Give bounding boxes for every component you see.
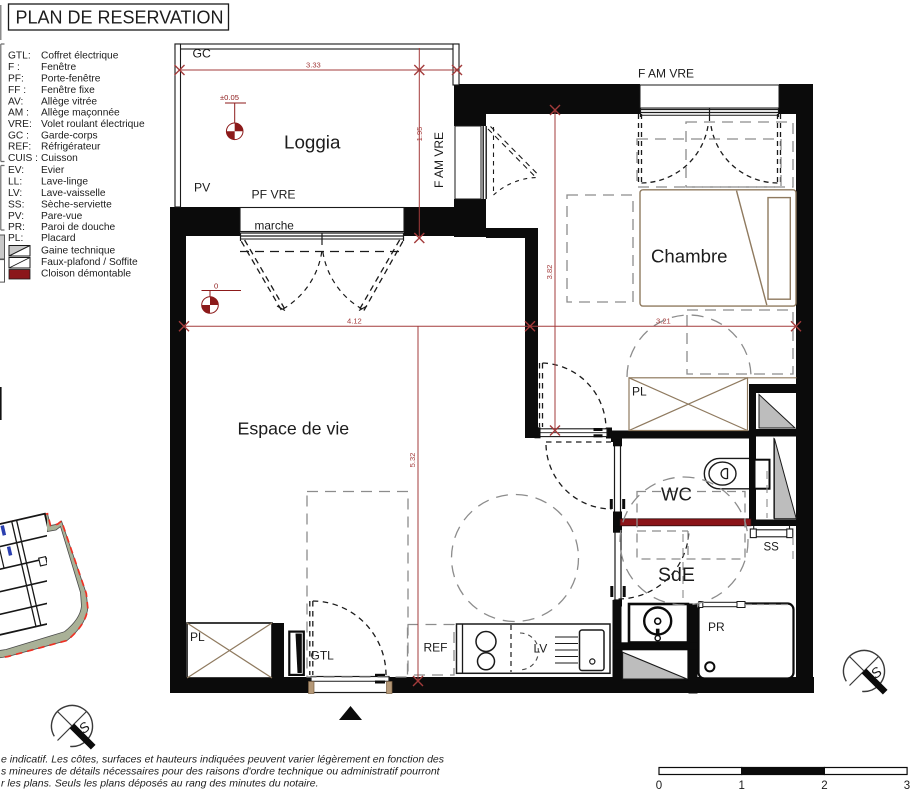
svg-text:GC: GC [193, 47, 211, 61]
svg-text:SdE: SdE [658, 564, 695, 586]
svg-text:EV:: EV: [8, 165, 24, 176]
svg-text:Paroi de douche: Paroi de douche [41, 222, 116, 233]
svg-text:Porte-fenêtre: Porte-fenêtre [41, 74, 101, 85]
svg-text:PV: PV [194, 181, 211, 195]
svg-text:Espace de vie: Espace de vie [238, 419, 350, 439]
svg-text:3.33: 3.33 [306, 61, 321, 70]
svg-text:Cuisson: Cuisson [41, 153, 78, 164]
svg-text:F :: F : [8, 62, 20, 73]
svg-text:REF:: REF: [8, 142, 31, 153]
svg-text:PV:: PV: [8, 211, 24, 222]
svg-text:F AM VRE: F AM VRE [432, 132, 446, 188]
svg-text:Gaine technique: Gaine technique [41, 246, 116, 257]
svg-text:s mineures de détails nécessai: s mineures de détails nécessaires pour d… [1, 766, 441, 778]
svg-text:AM :: AM : [8, 108, 29, 119]
svg-text:Réfrigérateur: Réfrigérateur [41, 142, 101, 153]
svg-text:Volet roulant électrique: Volet roulant électrique [41, 119, 145, 130]
svg-text:PL:: PL: [8, 233, 23, 244]
svg-text:e indicatif. Les côtes, surfac: e indicatif. Les côtes, surfaces et haut… [1, 754, 445, 766]
svg-text:3: 3 [904, 780, 910, 792]
svg-text:5.32: 5.32 [408, 453, 417, 468]
svg-text:Allège maçonnée: Allège maçonnée [41, 108, 120, 119]
svg-text:Lave-linge: Lave-linge [41, 177, 88, 188]
svg-text:0: 0 [656, 780, 662, 792]
svg-text:3.21: 3.21 [656, 317, 671, 326]
svg-text:PR: PR [708, 620, 725, 634]
svg-text:marche: marche [255, 219, 295, 233]
svg-text:Pare-vue: Pare-vue [41, 211, 83, 222]
svg-text:Coffret électrique: Coffret électrique [41, 51, 119, 62]
svg-text:CUIS :: CUIS : [8, 153, 38, 164]
svg-text:PL: PL [190, 630, 205, 644]
svg-text:GTL: GTL [311, 649, 335, 663]
svg-text:3.82: 3.82 [545, 265, 554, 280]
svg-text:REF: REF [424, 641, 448, 655]
svg-text:PLAN DE RESERVATION: PLAN DE RESERVATION [16, 8, 224, 28]
svg-text:Placard: Placard [41, 233, 76, 244]
svg-text:Garde-corps: Garde-corps [41, 130, 98, 141]
svg-text:Sèche-serviette: Sèche-serviette [41, 200, 112, 211]
svg-text:FF :: FF : [8, 85, 26, 96]
svg-text:PF:: PF: [8, 74, 24, 85]
svg-text:Cloison démontable: Cloison démontable [41, 269, 131, 280]
svg-text:2: 2 [821, 780, 827, 792]
svg-text:1: 1 [738, 780, 744, 792]
svg-text:LV: LV [534, 642, 548, 656]
svg-text:LL:: LL: [8, 177, 22, 188]
svg-text:GTL:: GTL: [8, 51, 31, 62]
svg-text:Chambre: Chambre [651, 246, 727, 267]
svg-text:Loggia: Loggia [284, 132, 341, 153]
svg-text:GC :: GC : [8, 130, 29, 141]
svg-text:SS: SS [764, 542, 780, 554]
svg-text:F AM VRE: F AM VRE [638, 67, 694, 81]
svg-text:WC: WC [661, 484, 692, 505]
svg-text:1.95: 1.95 [415, 127, 424, 142]
svg-text:AV:: AV: [8, 97, 23, 108]
svg-text:r les plans. Seuls les plans d: r les plans. Seuls les plans déposés au … [1, 778, 319, 790]
svg-text:Fenêtre: Fenêtre [41, 62, 76, 73]
svg-text:±0.05: ±0.05 [220, 93, 239, 102]
svg-text:PL: PL [632, 385, 647, 399]
svg-text:SS:: SS: [8, 200, 24, 211]
svg-text:Fenêtre fixe: Fenêtre fixe [41, 85, 95, 96]
svg-text:VRE:: VRE: [8, 119, 32, 130]
svg-text:Evier: Evier [41, 165, 65, 176]
svg-text:0: 0 [214, 282, 218, 291]
svg-text:Faux-plafond / Soffite: Faux-plafond / Soffite [41, 257, 138, 268]
svg-text:Allège vitrée: Allège vitrée [41, 97, 97, 108]
svg-text:PF VRE: PF VRE [252, 188, 296, 202]
svg-text:LV:: LV: [8, 188, 22, 199]
svg-text:Lave-vaisselle: Lave-vaisselle [41, 188, 106, 199]
svg-text:4.12: 4.12 [347, 317, 362, 326]
svg-text:PR:: PR: [8, 222, 25, 233]
